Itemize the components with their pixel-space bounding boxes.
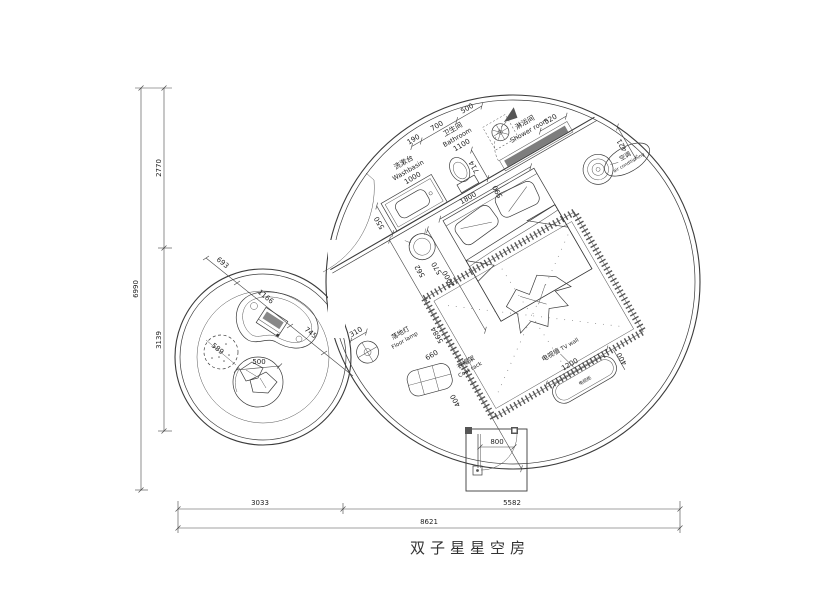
floor-plan-page: { "title": "双子星星空房", "labels": { "washba… xyxy=(0,0,837,592)
dim-left-chain: 6990 2770 3139 xyxy=(132,86,172,493)
dim-5582: 5582 xyxy=(503,499,521,507)
dim-stool: 562 570 xyxy=(413,255,443,284)
dim-693: 693 xyxy=(215,256,230,271)
dim-562: 562 xyxy=(413,263,427,279)
dim-190: 190 xyxy=(406,133,422,147)
dim-3139: 3139 xyxy=(155,331,163,349)
dim-570: 570 xyxy=(430,260,444,276)
dim-800: 800 xyxy=(490,438,503,446)
connecting-door xyxy=(323,173,374,338)
dim-1166: 1166 xyxy=(256,288,275,306)
washbasin-counter xyxy=(381,174,447,231)
dim-550: 550 xyxy=(373,215,387,231)
dim-500: 500 xyxy=(459,102,475,116)
dim-6990: 6990 xyxy=(132,280,140,298)
floor-lamp-label: 落地灯 Floor lamp xyxy=(385,321,419,351)
floor-plan-drawing: 电视柜 xyxy=(0,0,837,592)
dim-bottom-chain: 3033 5582 8621 xyxy=(176,499,683,533)
air-conditioner-unit xyxy=(578,129,655,193)
lounge-desk xyxy=(236,292,318,348)
dim-8621: 8621 xyxy=(420,518,438,526)
dim-400-rack: 400 xyxy=(449,393,463,409)
dim-310: 310 xyxy=(348,325,364,339)
dim-3033: 3033 xyxy=(251,499,269,507)
laptop xyxy=(256,307,288,337)
lounge-pouf: 589 xyxy=(204,335,238,369)
dim-2770: 2770 xyxy=(155,159,163,177)
floor-lamp xyxy=(353,337,383,367)
dim-714: 714 xyxy=(467,159,481,175)
dim-745: 745 xyxy=(303,326,318,341)
lounge-chair: 500 xyxy=(233,357,283,407)
washbasin-label: 洗漱台 Washbasin 1000 xyxy=(386,150,430,191)
drawing-title: 双子星星空房 xyxy=(410,539,530,557)
dim-bed-width: 1800 xyxy=(434,159,535,223)
tv-cabinet-label: 电视柜 xyxy=(577,374,593,387)
carpet xyxy=(424,212,643,418)
dim-400-tv: 400 xyxy=(615,351,629,367)
bedside-stool xyxy=(404,228,440,264)
dim-500: 500 xyxy=(252,358,265,366)
dim-660: 660 xyxy=(424,349,440,363)
